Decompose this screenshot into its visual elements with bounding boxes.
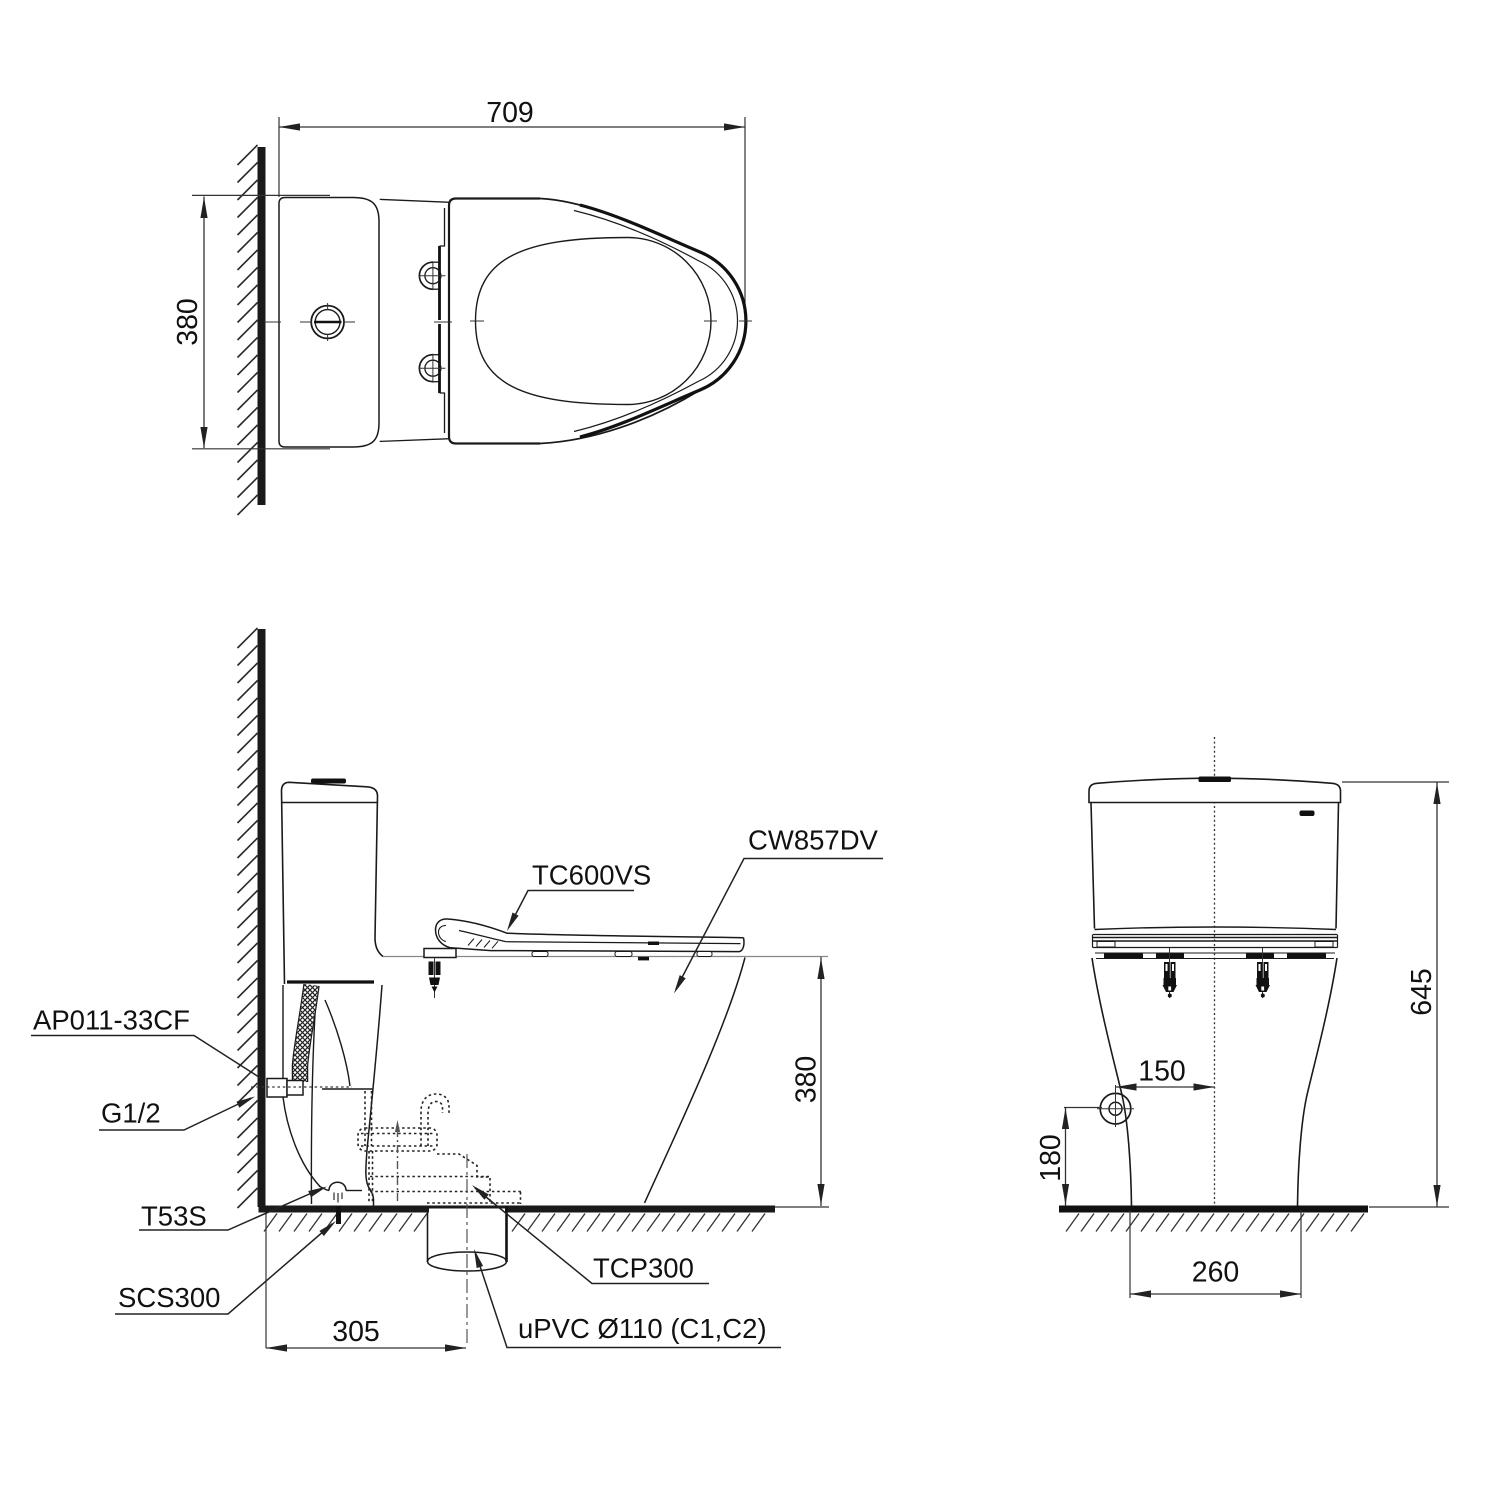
svg-text:709: 709 [486, 97, 534, 129]
svg-text:150: 150 [1138, 1056, 1186, 1088]
svg-text:305: 305 [332, 1316, 380, 1348]
svg-text:TC600VS: TC600VS [532, 860, 651, 891]
svg-text:180: 180 [1035, 1134, 1067, 1182]
svg-text:TCP300: TCP300 [593, 1253, 694, 1284]
svg-text:uPVC Ø110 (C1,C2): uPVC Ø110 (C1,C2) [518, 1313, 767, 1344]
svg-text:G1/2: G1/2 [101, 1098, 161, 1129]
svg-text:AP011-33CF: AP011-33CF [33, 1005, 190, 1036]
svg-text:SCS300: SCS300 [118, 1282, 220, 1313]
svg-text:380: 380 [172, 298, 204, 346]
svg-text:260: 260 [1192, 1257, 1240, 1289]
svg-text:CW857DV: CW857DV [748, 825, 879, 856]
svg-text:645: 645 [1406, 968, 1438, 1016]
svg-text:380: 380 [791, 1056, 823, 1104]
svg-text:T53S: T53S [141, 1201, 207, 1232]
